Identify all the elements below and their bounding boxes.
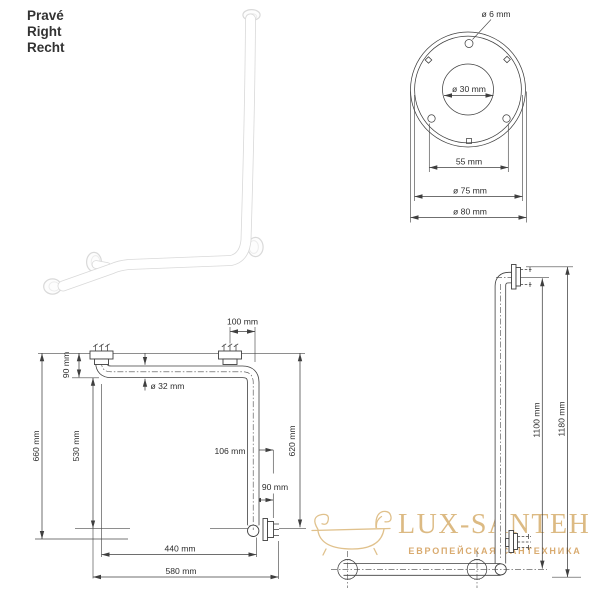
dim-outer-diameter: ø 80 mm xyxy=(453,207,487,217)
variant-label-de: Recht xyxy=(27,40,65,55)
bathtub-logo xyxy=(312,511,391,555)
screw-hole-right xyxy=(503,115,510,122)
dim-bolt-spacing: 55 mm xyxy=(456,157,482,167)
plan-view-drawing: 100 mm 90 mm 660 mm 530 mm 620 mm ø 32 m… xyxy=(31,317,306,580)
dim-ring-diameter: ø 75 mm xyxy=(453,186,487,196)
variant-label-en: Right xyxy=(27,24,62,39)
catalog-technical-sheet: Pravé Right Recht xyxy=(0,0,600,600)
side-flange-top xyxy=(512,265,534,290)
keyhole-slot-right xyxy=(504,56,511,62)
plan-flange-right xyxy=(219,344,242,365)
screw-hole-top xyxy=(465,40,473,48)
variant-labels: Pravé Right Recht xyxy=(27,8,65,55)
screw-hole-left xyxy=(428,115,435,122)
keyhole-slot-left xyxy=(425,57,432,63)
dim-overall-width: 580 mm xyxy=(165,566,196,576)
watermark-brand: LUX-SANTEH xyxy=(398,509,590,540)
dim-right-height: 620 mm xyxy=(287,425,297,456)
dim-tube-diameter: ø 32 mm xyxy=(151,381,185,391)
plan-flange-left xyxy=(90,344,113,365)
dim-inner-width: 440 mm xyxy=(164,544,195,554)
variant-label-cs: Pravé xyxy=(27,8,64,23)
dim-top-offset: 100 mm xyxy=(227,317,258,327)
dim-overall-height: 660 mm xyxy=(31,430,41,461)
product-photo xyxy=(44,10,263,295)
dim-center-height: 1100 mm xyxy=(532,402,542,437)
dim-inner-height: 530 mm xyxy=(71,430,81,461)
plan-flange-bottom xyxy=(263,519,279,541)
dim-screw-hole: ø 6 mm xyxy=(481,9,510,19)
technical-drawing-canvas: Pravé Right Recht xyxy=(0,0,600,600)
dim-wall-offset: 90 mm xyxy=(61,352,71,378)
dim-bottom-offset: 90 mm xyxy=(262,482,288,492)
watermark: LUX-SANTEH ЕВРОПЕЙСКАЯ САНТЕХНИКА xyxy=(312,509,590,556)
dim-overall-height-side: 1180 mm xyxy=(557,401,567,436)
photo-grab-bar-tube xyxy=(63,19,251,286)
dim-bore: ø 30 mm xyxy=(452,84,486,94)
dim-side-offset: 106 mm xyxy=(214,446,245,456)
flange-detail-drawing: ø 6 mm ø 30 mm 55 mm ø 75 mm ø 80 mm xyxy=(411,9,527,223)
